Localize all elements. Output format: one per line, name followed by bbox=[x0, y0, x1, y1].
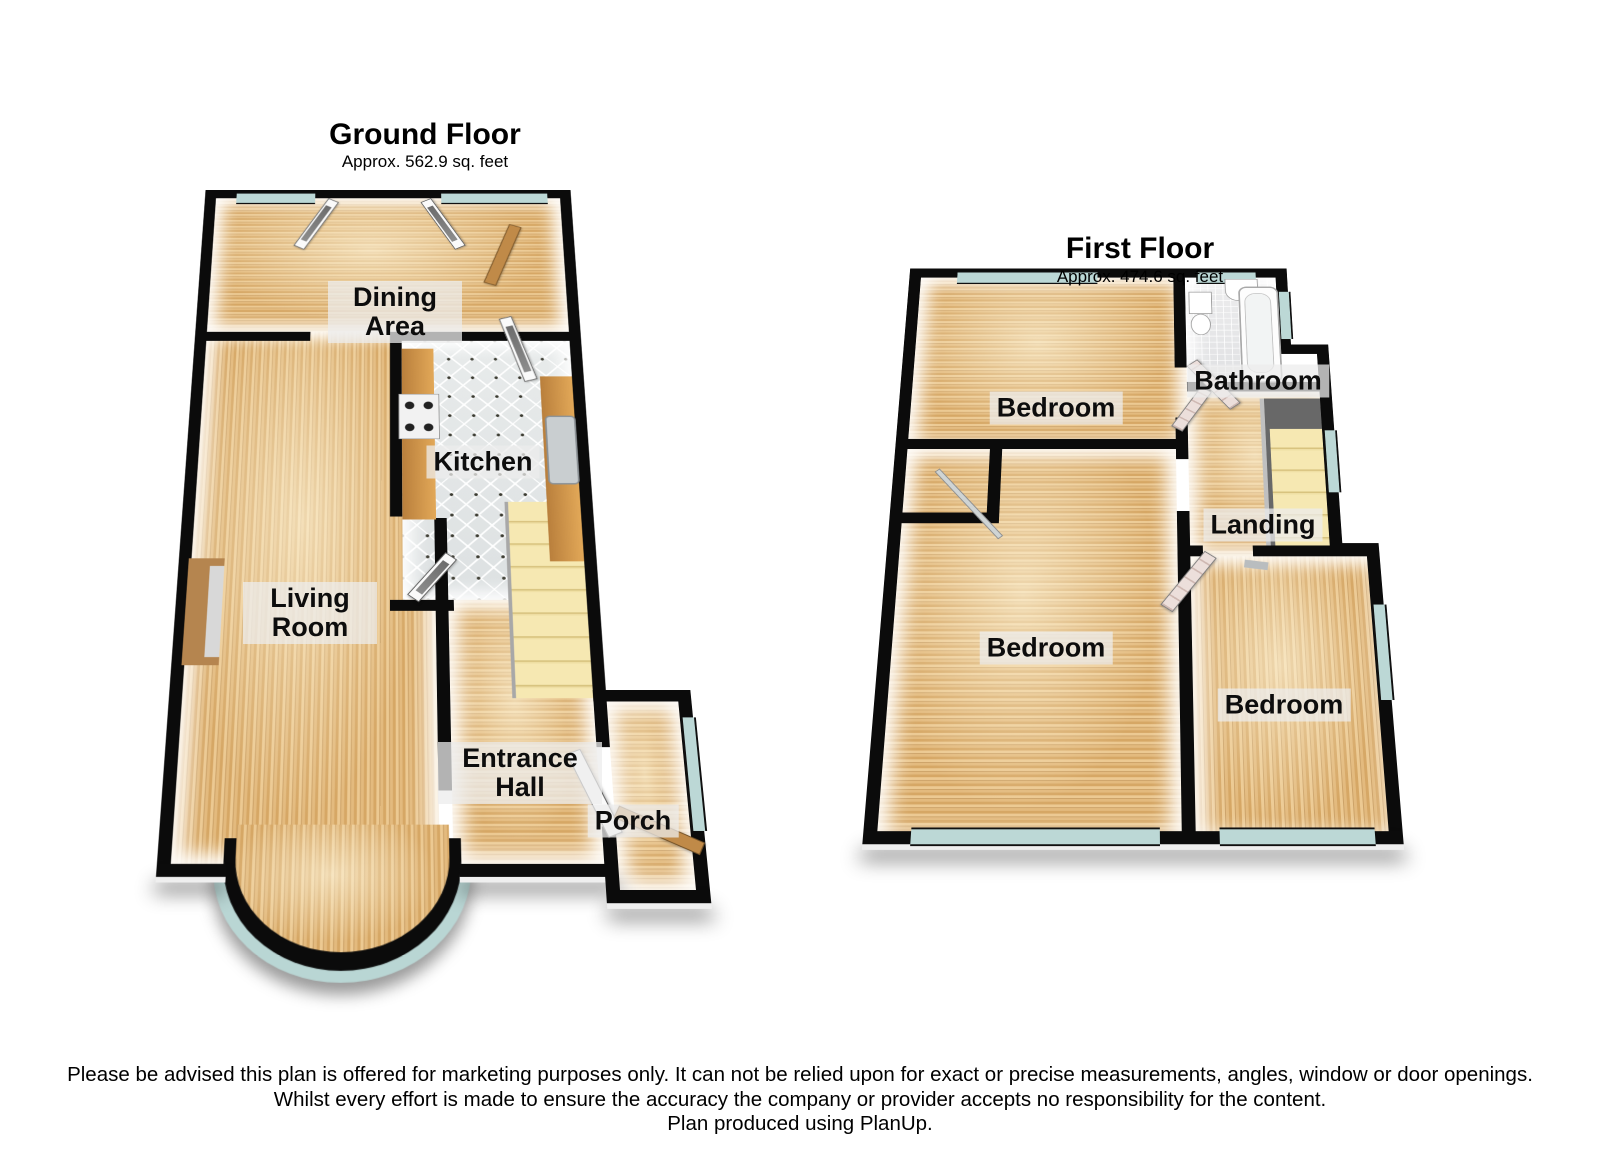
stove-icon bbox=[398, 394, 439, 439]
room-label-kitchen: Kitchen bbox=[426, 446, 539, 479]
room-label-living-room: Living Room bbox=[243, 582, 377, 644]
ground-floor-area: Approx. 562.9 sq. feet bbox=[150, 152, 700, 172]
ground-floor-title: Ground Floor bbox=[150, 118, 700, 152]
wall bbox=[1177, 545, 1203, 556]
room-label-bedroom-bottom: Bedroom bbox=[1218, 689, 1351, 722]
window-glass bbox=[910, 827, 1160, 846]
first-floor-area: Approx. 474.6 sq. feet bbox=[860, 267, 1420, 287]
room-label-landing: Landing bbox=[1204, 509, 1323, 542]
first-floor-title: First Floor bbox=[860, 232, 1420, 266]
disclaimer-line-2: Whilst every effort is made to ensure th… bbox=[0, 1088, 1600, 1113]
window-glass bbox=[441, 192, 548, 204]
floorplan-page: { "ground_floor": { "title": "Ground Flo… bbox=[0, 0, 1600, 1163]
room-label-dining-area: Dining Area bbox=[328, 281, 462, 343]
room-label-bathroom: Bathroom bbox=[1187, 365, 1329, 398]
window-glass bbox=[236, 192, 315, 204]
toilet-bowl-icon bbox=[1191, 314, 1212, 335]
room-label-bedroom-middle: Bedroom bbox=[980, 632, 1113, 665]
bathtub-basin-icon bbox=[1244, 293, 1275, 373]
window-glass bbox=[1323, 430, 1341, 492]
wall bbox=[156, 864, 226, 877]
kitchen-sink-icon bbox=[545, 416, 580, 485]
wall bbox=[206, 332, 310, 341]
wall bbox=[459, 864, 619, 877]
wall bbox=[895, 439, 1188, 449]
wall bbox=[1173, 278, 1186, 368]
window-glass bbox=[1219, 827, 1375, 846]
room-label-bedroom-top: Bedroom bbox=[990, 392, 1123, 425]
wall bbox=[606, 890, 711, 903]
room-label-entrance-hall: Entrance Hall bbox=[438, 742, 602, 804]
wall bbox=[1253, 545, 1380, 556]
disclaimer-line-3: Plan produced using PlanUp. bbox=[0, 1112, 1600, 1137]
disclaimer-line-1: Please be advised this plan is offered f… bbox=[0, 1063, 1600, 1088]
toilet-icon bbox=[1188, 292, 1212, 314]
disclaimer: Please be advised this plan is offered f… bbox=[0, 1063, 1600, 1137]
first-floor-plan bbox=[860, 269, 1405, 848]
room-label-porch: Porch bbox=[588, 805, 679, 838]
